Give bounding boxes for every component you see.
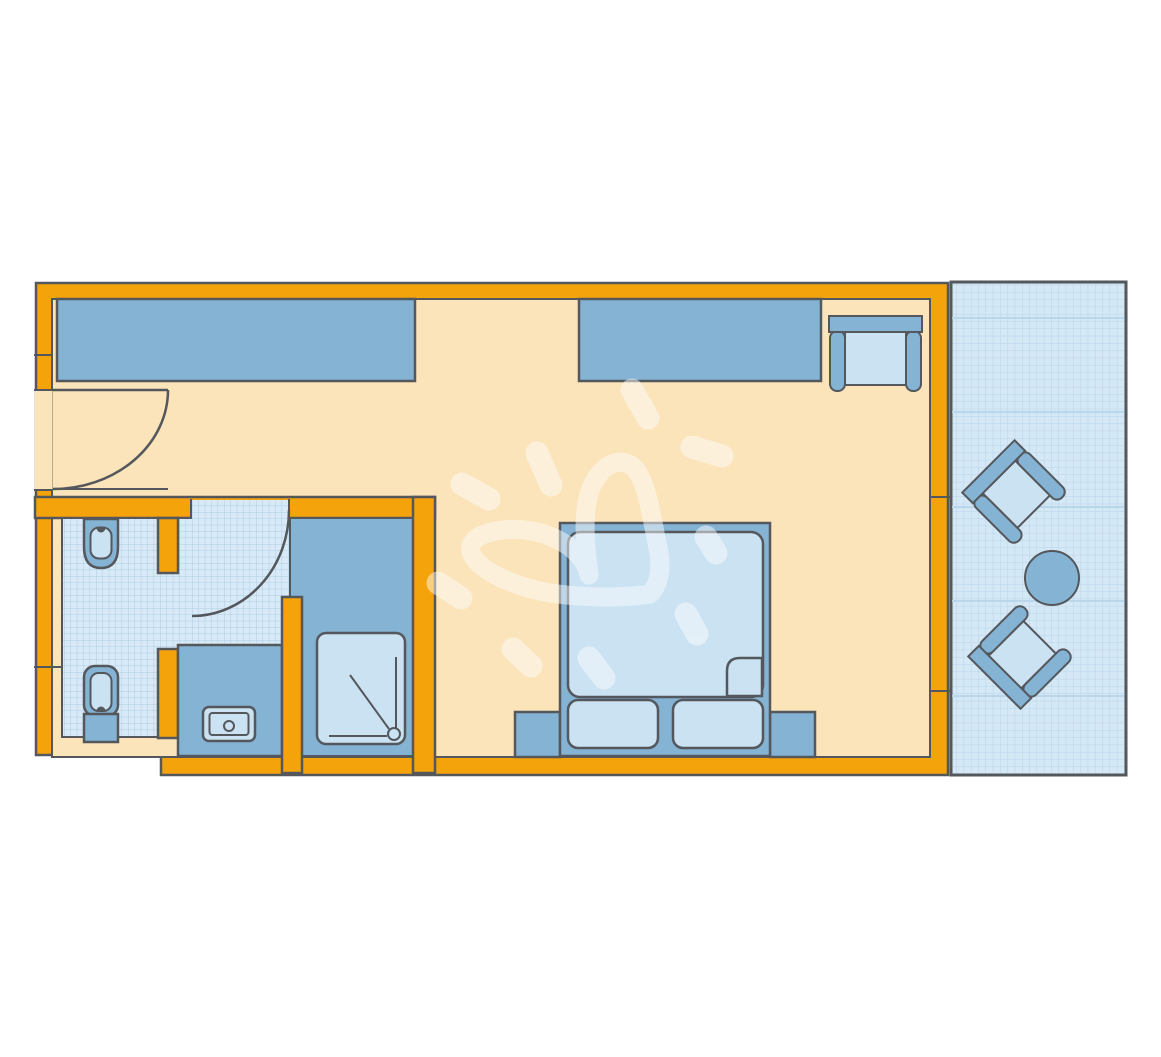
ray [537, 453, 551, 485]
washbasin-drain [224, 721, 234, 731]
chair-armrest [830, 331, 845, 391]
wall-hung-toilet [84, 519, 118, 568]
floor-plan-drawing [0, 0, 1161, 1057]
pillow-right [673, 700, 763, 748]
chair-backrest [829, 316, 922, 332]
ray [589, 658, 604, 678]
shower-tray [317, 633, 405, 744]
ray [686, 614, 697, 634]
desk-chair [829, 316, 922, 391]
balcony-terrace [951, 282, 1126, 775]
pillow-left [568, 700, 658, 748]
balcony-floor [951, 282, 1126, 775]
floor-plan-canvas [0, 0, 1161, 1057]
toilet [84, 666, 118, 742]
entrance-wall-opening [35, 391, 53, 489]
wardrobe [57, 299, 415, 381]
ray [513, 649, 531, 666]
sideboard [579, 299, 821, 381]
balcony-round-table [1025, 551, 1079, 605]
bathroom-right-wall [413, 497, 435, 773]
ray [438, 583, 461, 598]
toilet-bowl [91, 673, 112, 711]
shower-drain [388, 728, 400, 740]
chair-seat [845, 331, 906, 385]
vanity-washbasin [203, 707, 255, 741]
bathroom-doorway [192, 500, 289, 520]
ray [706, 537, 716, 553]
toilet-cistern [84, 714, 118, 742]
ray [692, 447, 722, 456]
wc-partition-wall [158, 649, 178, 738]
bathroom [34, 497, 435, 773]
wc-partition-wall [158, 518, 178, 573]
nightstand-right [770, 712, 815, 757]
shower-tray-base [317, 633, 405, 744]
ray [632, 390, 648, 418]
ray [462, 484, 489, 499]
duvet-folded-corner [727, 658, 762, 696]
shower-partition-wall [282, 597, 302, 773]
chair-armrest [906, 331, 921, 391]
nightstand-left [515, 712, 560, 757]
